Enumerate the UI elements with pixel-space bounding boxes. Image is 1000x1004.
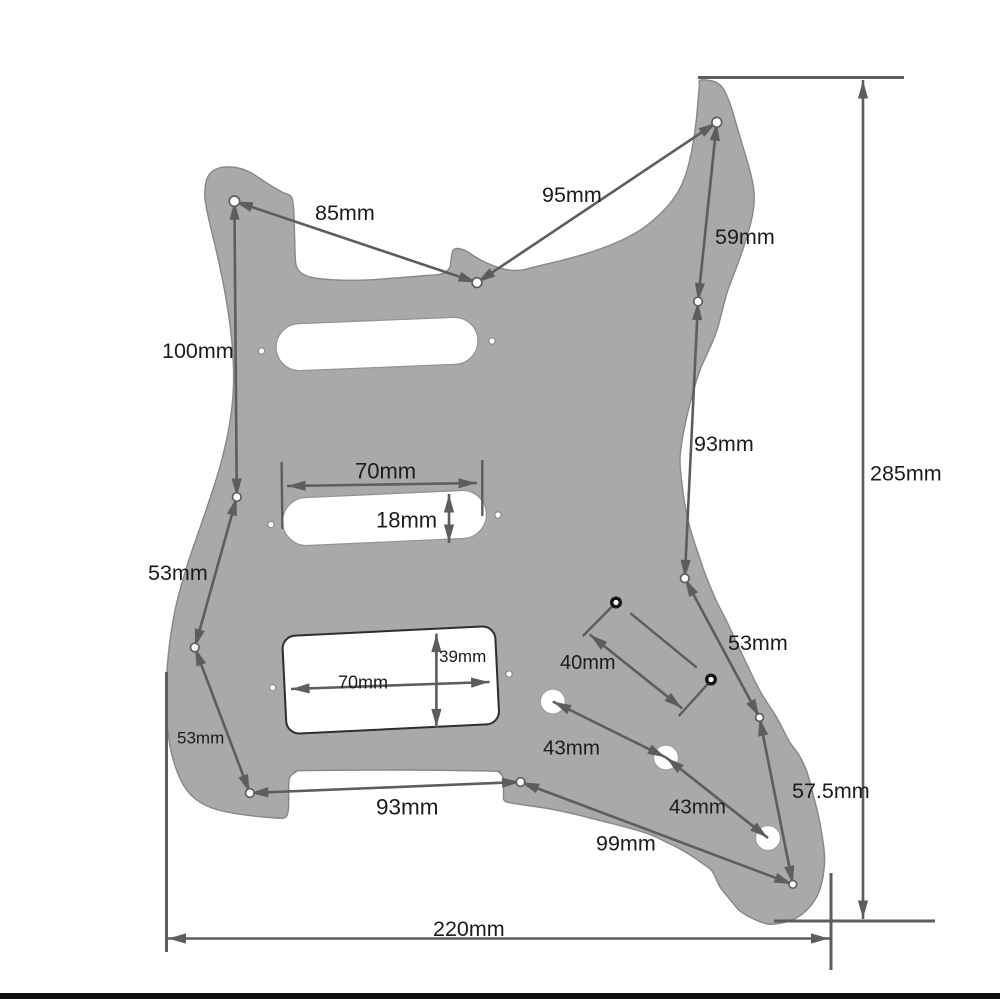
- svg-text:95mm: 95mm: [542, 183, 602, 207]
- svg-text:18mm: 18mm: [376, 508, 437, 533]
- svg-text:53mm: 53mm: [177, 729, 224, 748]
- svg-text:53mm: 53mm: [728, 631, 788, 655]
- svg-text:99mm: 99mm: [596, 832, 656, 856]
- svg-text:220mm: 220mm: [433, 917, 505, 941]
- svg-text:53mm: 53mm: [148, 561, 208, 585]
- svg-text:40mm: 40mm: [560, 652, 616, 674]
- svg-text:70mm: 70mm: [355, 459, 416, 484]
- svg-text:57.5mm: 57.5mm: [792, 779, 870, 803]
- svg-text:93mm: 93mm: [376, 795, 439, 820]
- svg-text:93mm: 93mm: [694, 432, 754, 456]
- svg-text:70mm: 70mm: [338, 673, 388, 693]
- svg-text:100mm: 100mm: [162, 339, 234, 363]
- svg-text:285mm: 285mm: [870, 462, 942, 486]
- svg-text:43mm: 43mm: [543, 737, 600, 760]
- svg-text:85mm: 85mm: [315, 201, 375, 225]
- svg-text:59mm: 59mm: [715, 225, 775, 249]
- svg-text:43mm: 43mm: [669, 796, 726, 819]
- svg-text:39mm: 39mm: [439, 647, 486, 666]
